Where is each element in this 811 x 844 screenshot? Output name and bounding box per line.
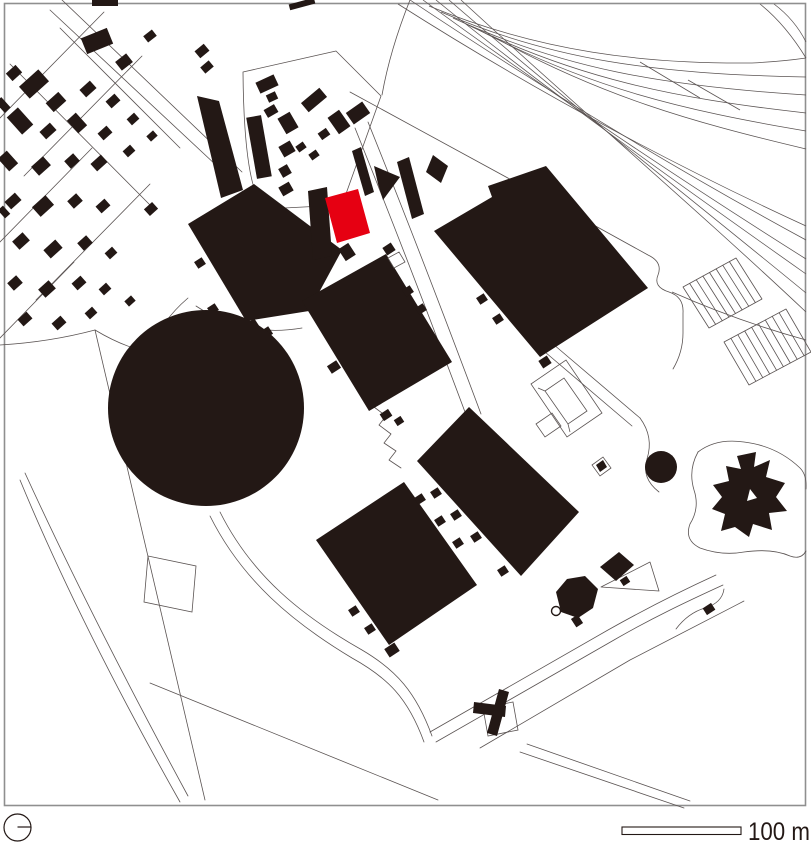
site-plan-page: 100 m bbox=[0, 0, 811, 844]
building-round-hall bbox=[108, 310, 304, 506]
scale-bar: 100 m bbox=[622, 818, 810, 844]
scale-bar-rect bbox=[622, 827, 741, 835]
site-plan-map: 100 m bbox=[0, 0, 811, 844]
building-small-round bbox=[645, 451, 677, 483]
scale-bar-label: 100 m bbox=[748, 818, 810, 844]
north-indicator bbox=[4, 814, 31, 841]
